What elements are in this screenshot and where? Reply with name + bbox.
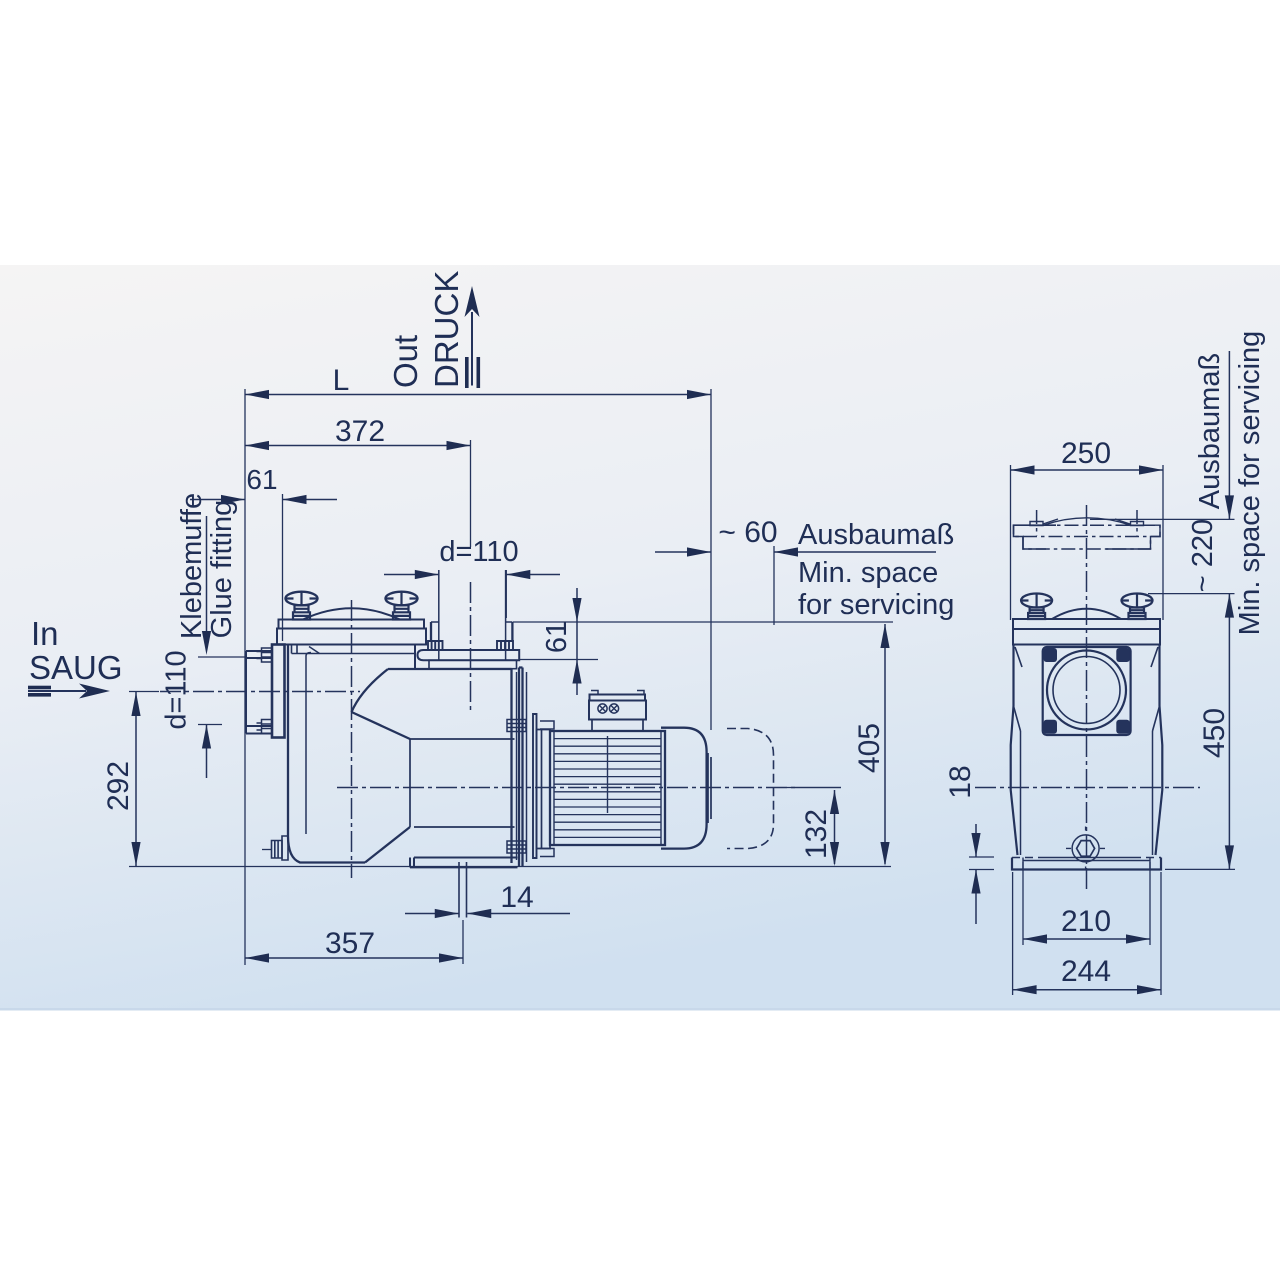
svg-text:Min. space: Min. space [798, 557, 938, 589]
svg-text:Ausbaumaß: Ausbaumaß [798, 519, 954, 551]
svg-text:61: 61 [541, 621, 573, 653]
svg-text:Glue fitting: Glue fitting [206, 500, 238, 639]
svg-text:Min. space for servicing: Min. space for servicing [1234, 331, 1266, 636]
svg-text:In: In [31, 615, 59, 652]
svg-text:357: 357 [325, 927, 375, 960]
svg-text:292: 292 [102, 761, 135, 811]
svg-text:250: 250 [1061, 437, 1111, 470]
svg-text:132: 132 [800, 809, 833, 859]
svg-text:405: 405 [853, 723, 886, 773]
svg-text:for servicing: for servicing [798, 589, 954, 621]
svg-text:L: L [333, 364, 350, 397]
svg-text:14: 14 [500, 881, 533, 914]
svg-text:Ausbaumaß: Ausbaumaß [1194, 353, 1226, 509]
svg-text:SAUG: SAUG [29, 649, 123, 686]
svg-text:244: 244 [1061, 955, 1111, 988]
svg-text:~ 220: ~ 220 [1187, 519, 1219, 592]
svg-text:~ 60: ~ 60 [718, 516, 777, 549]
svg-text:Out: Out [387, 335, 424, 388]
svg-text:450: 450 [1198, 708, 1231, 758]
svg-text:18: 18 [944, 765, 977, 798]
svg-text:Klebemuffe: Klebemuffe [176, 493, 208, 639]
svg-text:210: 210 [1061, 905, 1111, 938]
svg-text:d=110: d=110 [161, 650, 193, 729]
svg-text:d=110: d=110 [439, 536, 518, 568]
svg-text:61: 61 [246, 464, 277, 495]
svg-text:DRUCK: DRUCK [428, 271, 465, 388]
svg-text:372: 372 [335, 415, 385, 448]
